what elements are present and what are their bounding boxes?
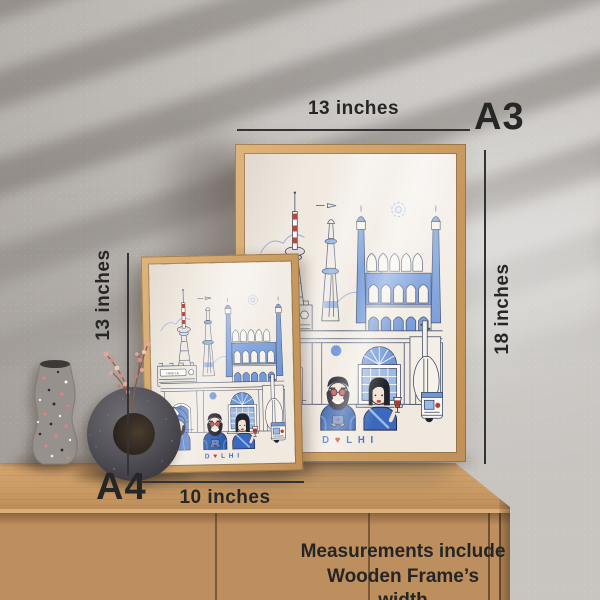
- a4-size-label: A4: [96, 466, 147, 509]
- door-seam: [215, 513, 217, 600]
- sunlight-band: [446, 107, 600, 442]
- product-photo-scene: INDIA: [0, 0, 600, 600]
- a3-width-measure-line: [237, 129, 470, 131]
- a3-height-label: 18 inches: [492, 239, 514, 379]
- a3-width-label: 13 inches: [237, 98, 470, 120]
- note-line-1: Measurements include: [301, 541, 506, 562]
- a4-width-label: 10 inches: [160, 487, 290, 509]
- note-line-2: Wooden Frame’s width: [327, 566, 479, 600]
- a4-height-label: 13 inches: [93, 225, 115, 365]
- a4-height-measure-line: [127, 253, 129, 475]
- a3-size-label: A3: [474, 96, 525, 139]
- measurement-note: Measurements include Wooden Frame’s widt…: [300, 540, 506, 600]
- a3-height-measure-line: [484, 150, 486, 464]
- a4-width-measure-line: [141, 481, 304, 483]
